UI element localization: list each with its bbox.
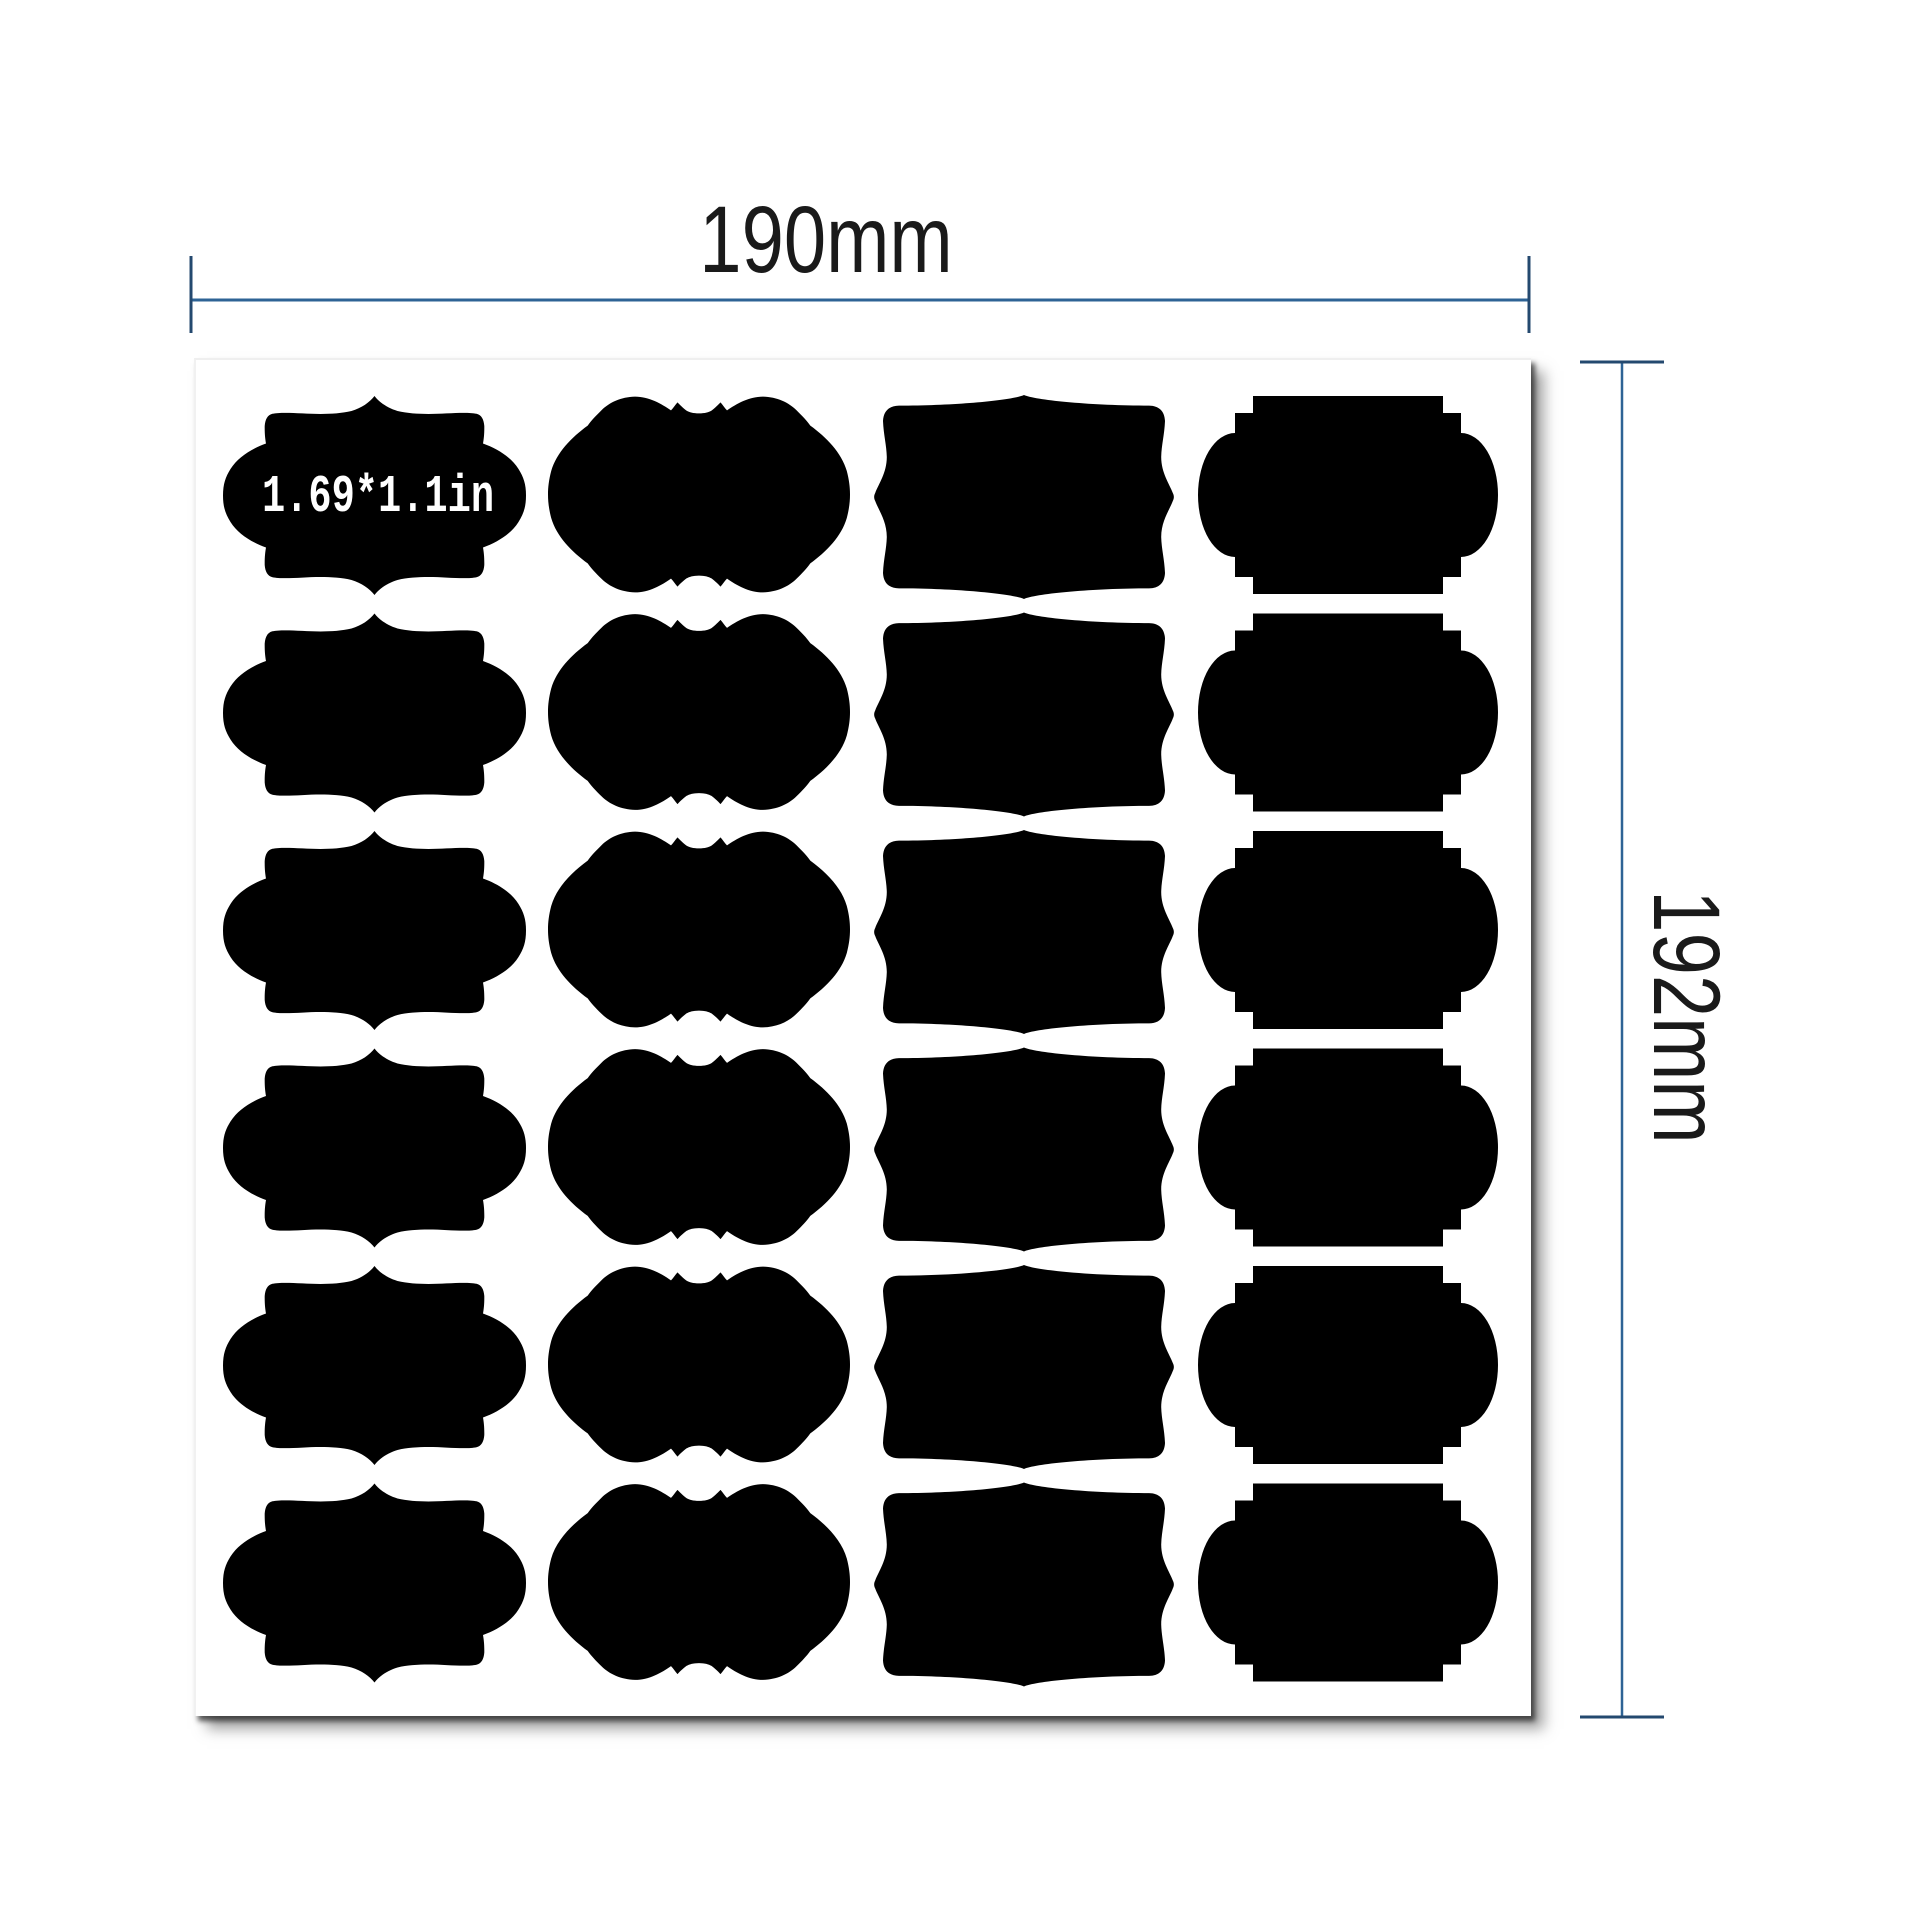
svg-text:190mm: 190mm	[699, 187, 952, 293]
svg-text:192mm: 192mm	[1633, 890, 1739, 1143]
svg-text:1.69*1.1in: 1.69*1.1in	[262, 466, 494, 527]
